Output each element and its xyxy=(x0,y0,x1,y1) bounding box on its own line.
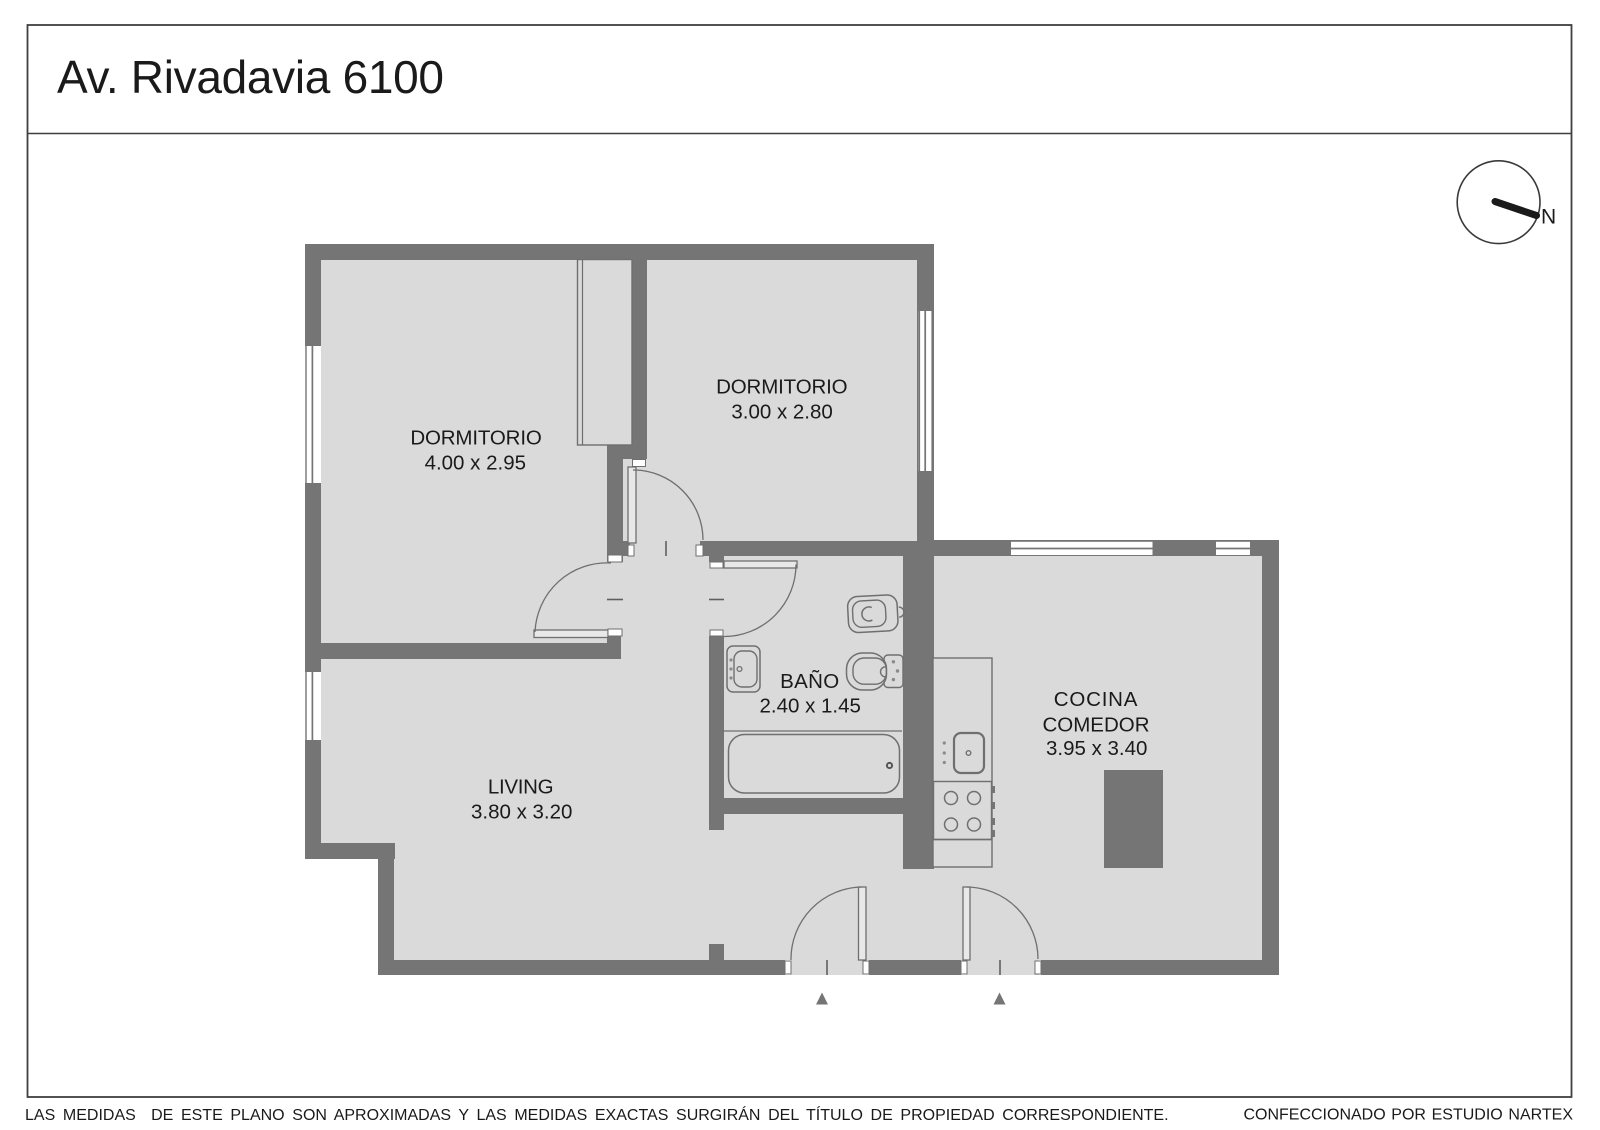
svg-text:BAÑO: BAÑO xyxy=(780,670,839,693)
svg-text:COMEDOR: COMEDOR xyxy=(1042,714,1149,737)
svg-text:DORMITORIO: DORMITORIO xyxy=(716,375,847,398)
svg-text:DORMITORIO: DORMITORIO xyxy=(410,426,541,449)
svg-text:3.80 x 3.20: 3.80 x 3.20 xyxy=(471,801,572,824)
svg-text:N: N xyxy=(1541,206,1556,229)
svg-text:2.40 x 1.45: 2.40 x 1.45 xyxy=(759,695,860,718)
svg-text:CONFECCIONADO POR ESTUDIO NART: CONFECCIONADO POR ESTUDIO NARTEX xyxy=(1243,1107,1573,1124)
svg-text:LIVING: LIVING xyxy=(488,776,553,799)
svg-text:Av. Rivadavia 6100: Av. Rivadavia 6100 xyxy=(57,51,444,103)
svg-text:LAS MEDIDAS DE ESTE PLANO SON: LAS MEDIDAS DE ESTE PLANO SON APROXIMADA… xyxy=(25,1105,1169,1124)
svg-text:3.95 x 3.40: 3.95 x 3.40 xyxy=(1046,737,1147,760)
svg-text:3.00 x 2.80: 3.00 x 2.80 xyxy=(731,400,832,423)
svg-text:4.00 x 2.95: 4.00 x 2.95 xyxy=(425,451,526,474)
svg-text:COCINA: COCINA xyxy=(1054,688,1139,711)
